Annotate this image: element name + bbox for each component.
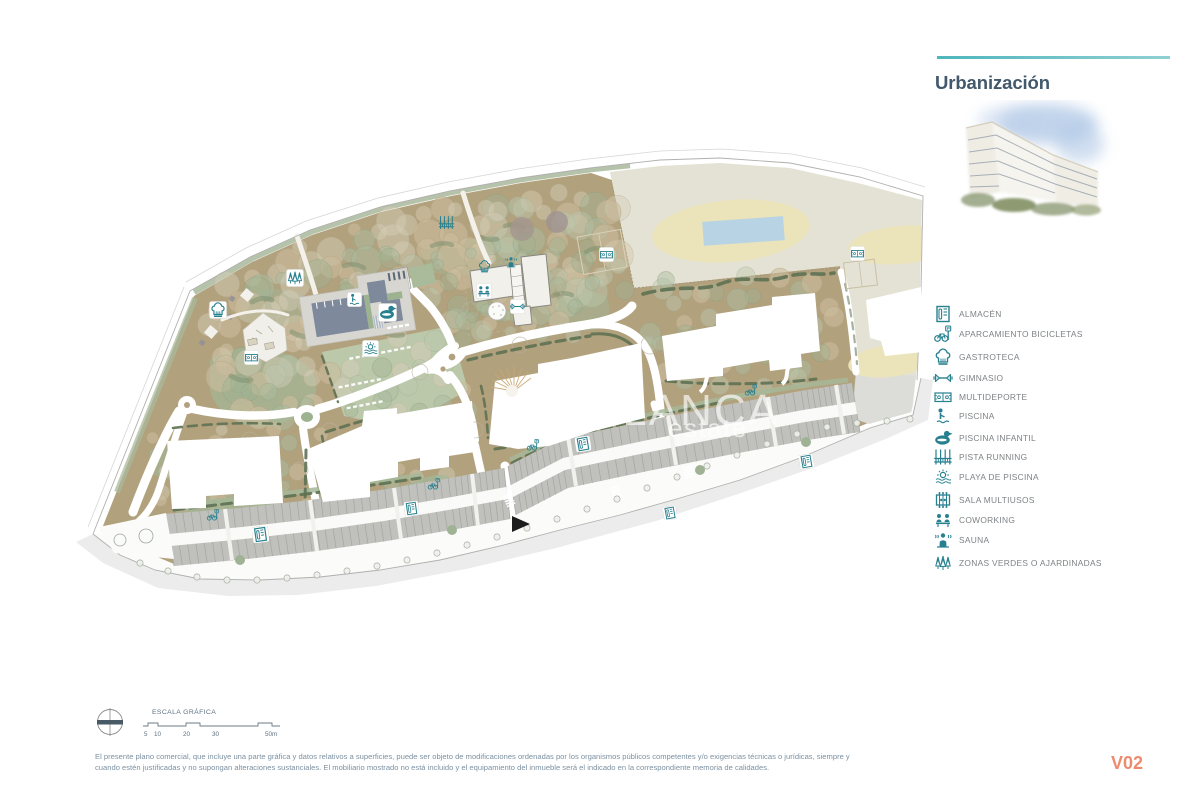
svg-text:30: 30 — [212, 731, 220, 738]
svg-text:P: P — [947, 326, 950, 331]
svg-text:10: 10 — [154, 731, 162, 738]
svg-text:5: 5 — [144, 731, 148, 738]
svg-text:P: P — [754, 384, 756, 388]
svg-text:50m: 50m — [265, 731, 277, 738]
svg-text:P: P — [536, 439, 538, 443]
svg-text:estate: estate — [668, 413, 748, 443]
svg-text:P: P — [216, 509, 218, 513]
svg-text:P: P — [437, 478, 439, 482]
svg-text:20: 20 — [183, 731, 191, 738]
